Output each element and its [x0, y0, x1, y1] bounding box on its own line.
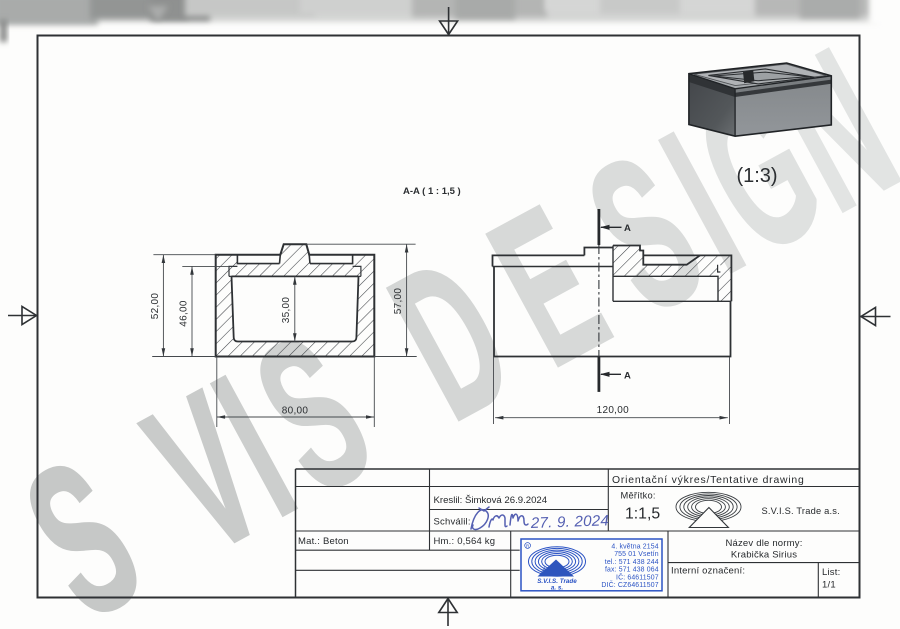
svg-text:1:1,5: 1:1,5: [625, 506, 660, 523]
svg-text:Krabička Sirius: Krabička Sirius: [731, 550, 797, 561]
svg-text:120,00: 120,00: [597, 405, 630, 416]
svg-text:a. s.: a. s.: [551, 585, 564, 592]
svg-text:Měřítko:: Měřítko:: [621, 491, 656, 501]
svg-text:35,00: 35,00: [281, 297, 292, 324]
svg-text:Mat.: Beton: Mat.: Beton: [298, 536, 349, 547]
svg-text:52,00: 52,00: [150, 293, 161, 320]
svg-text:755 01 Vsetín: 755 01 Vsetín: [614, 551, 658, 558]
svg-text:A: A: [624, 223, 631, 234]
svg-text:List:: List:: [822, 567, 840, 578]
svg-text:R: R: [526, 544, 529, 549]
svg-text:Název dle normy:: Název dle normy:: [725, 538, 802, 549]
svg-text:46,00: 46,00: [178, 300, 189, 327]
svg-text:IČ: 64611507: IČ: 64611507: [616, 572, 659, 581]
svg-text:A: A: [624, 371, 631, 382]
svg-text:Orientační výkres/Tentative dr: Orientační výkres/Tentative drawing: [612, 475, 805, 486]
svg-text:(1:3): (1:3): [736, 165, 777, 187]
svg-text:Hm.: 0,564 kg: Hm.: 0,564 kg: [434, 536, 496, 547]
svg-text:DIČ: CZ64611507: DIČ: CZ64611507: [601, 580, 658, 589]
svg-text:Kreslil: Šimková 26.9.2024: Kreslil: Šimková 26.9.2024: [434, 495, 548, 506]
svg-text:S.V.I.S. Trade a.s.: S.V.I.S. Trade a.s.: [762, 506, 840, 516]
svg-text:tel.: 571 438 244: tel.: 571 438 244: [605, 559, 659, 566]
svg-text:Interní označení:: Interní označení:: [671, 566, 745, 577]
svg-text:57,00: 57,00: [393, 288, 404, 315]
svg-text:fax: 571 438 064: fax: 571 438 064: [605, 567, 659, 574]
svg-text:80,00: 80,00: [282, 405, 309, 416]
svg-text:4. května 2154: 4. května 2154: [611, 544, 658, 551]
svg-text:Schválil:: Schválil:: [434, 517, 471, 528]
svg-text:A-A ( 1 : 1,5 ): A-A ( 1 : 1,5 ): [403, 186, 461, 197]
svg-text:1/1: 1/1: [822, 580, 836, 591]
svg-text:27. 9. 2024: 27. 9. 2024: [530, 512, 610, 532]
